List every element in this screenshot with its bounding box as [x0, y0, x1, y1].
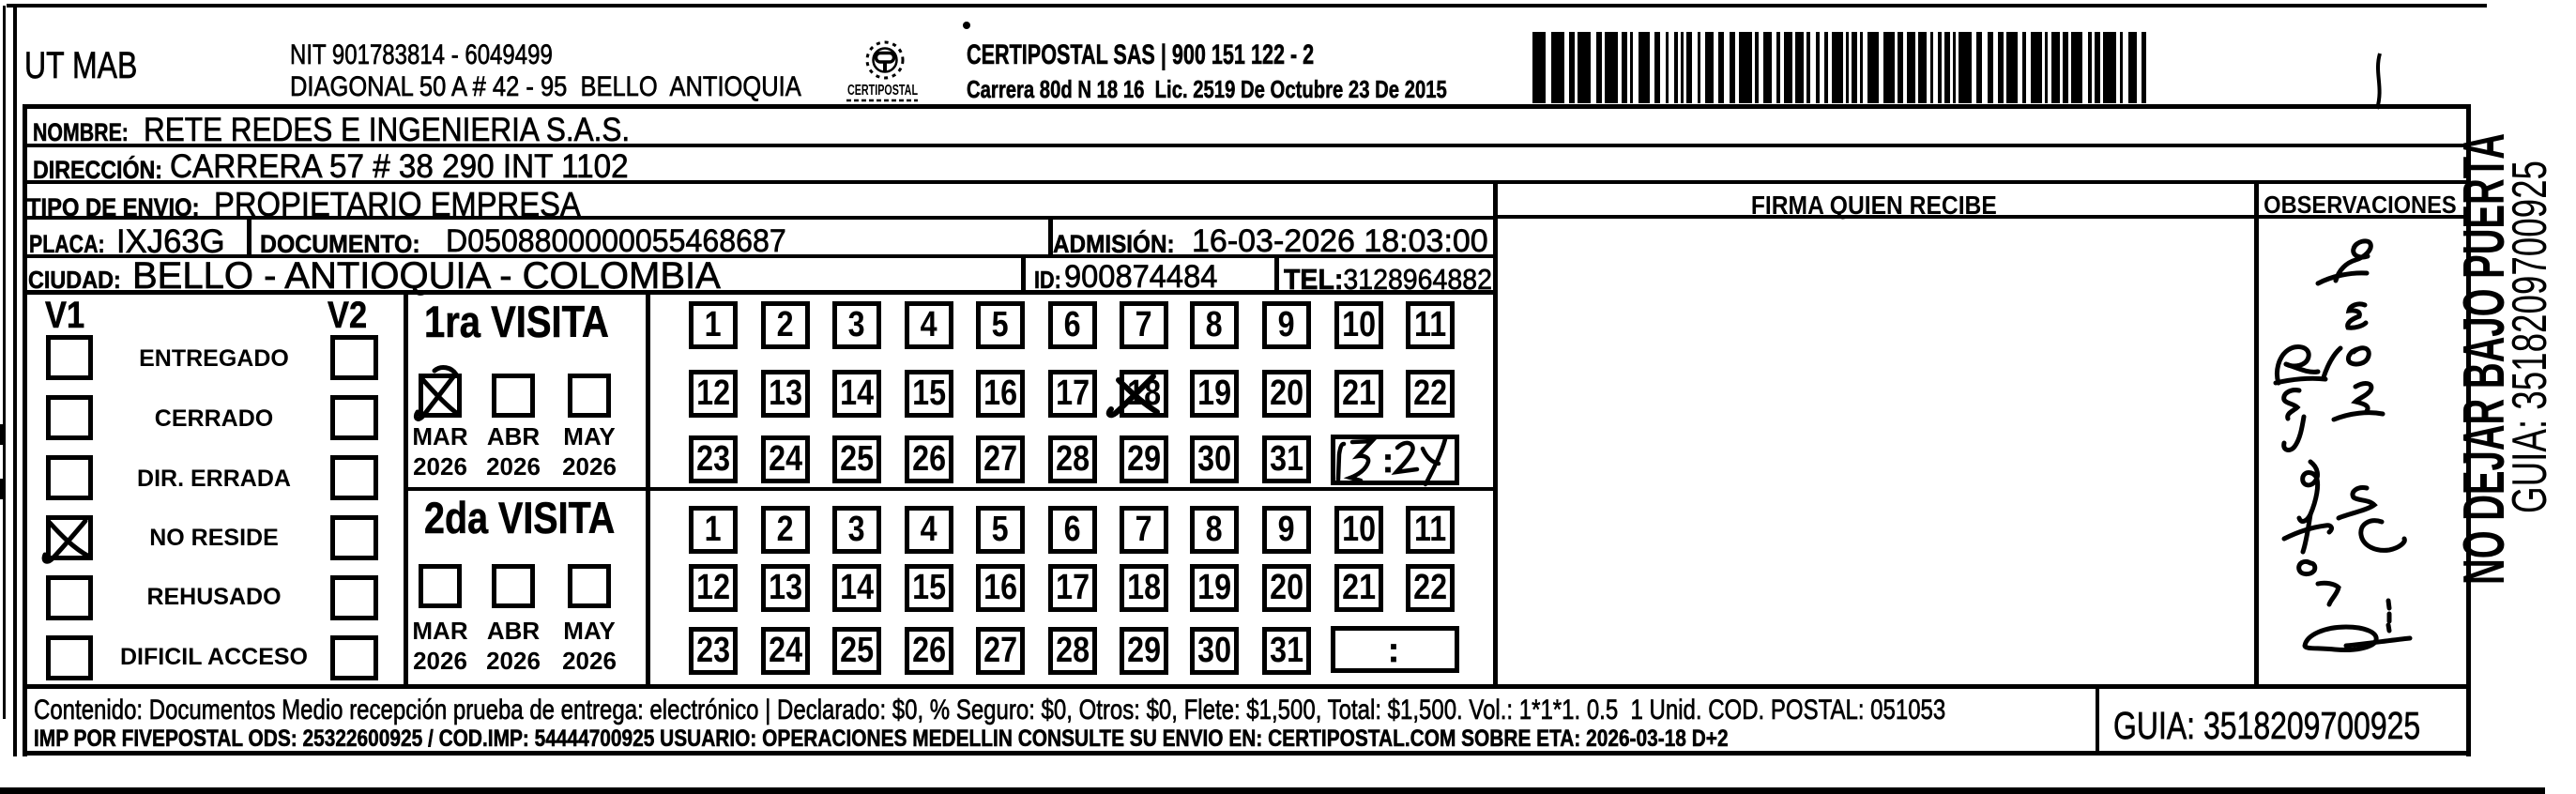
svg-text:CERTIPOSTAL: CERTIPOSTAL [847, 83, 918, 99]
